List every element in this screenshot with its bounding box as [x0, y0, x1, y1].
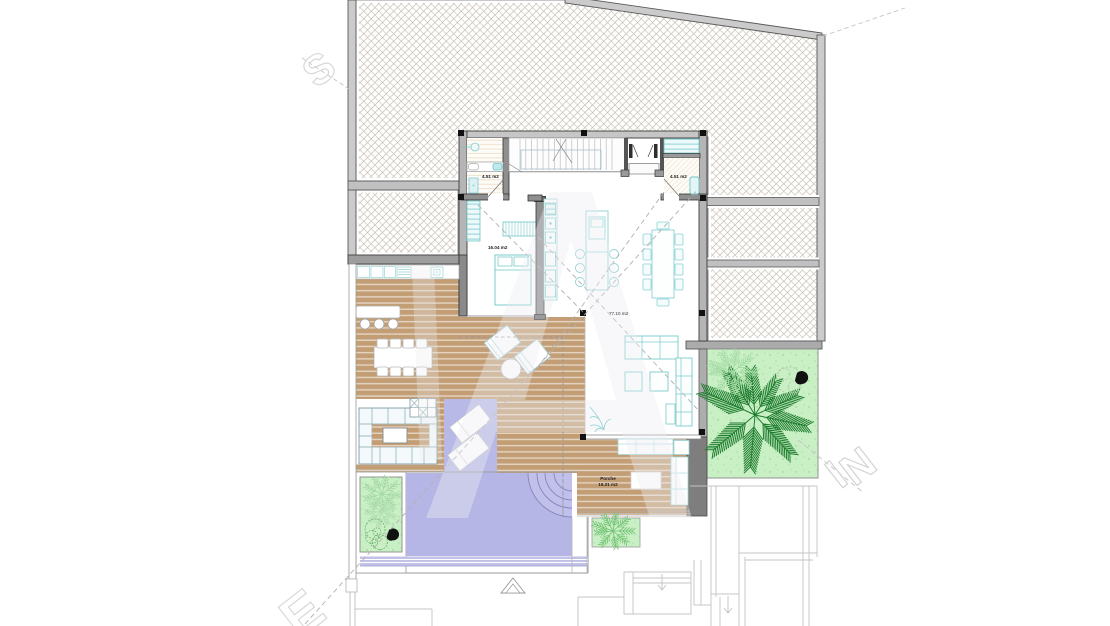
svg-text:16.04 m2: 16.04 m2: [488, 245, 508, 250]
svg-text:4.51 m2: 4.51 m2: [482, 174, 499, 179]
svg-text:4.51 m2: 4.51 m2: [670, 174, 687, 179]
svg-text:16.31 m2: 16.31 m2: [598, 482, 618, 487]
svg-text:Porche: Porche: [600, 476, 616, 481]
